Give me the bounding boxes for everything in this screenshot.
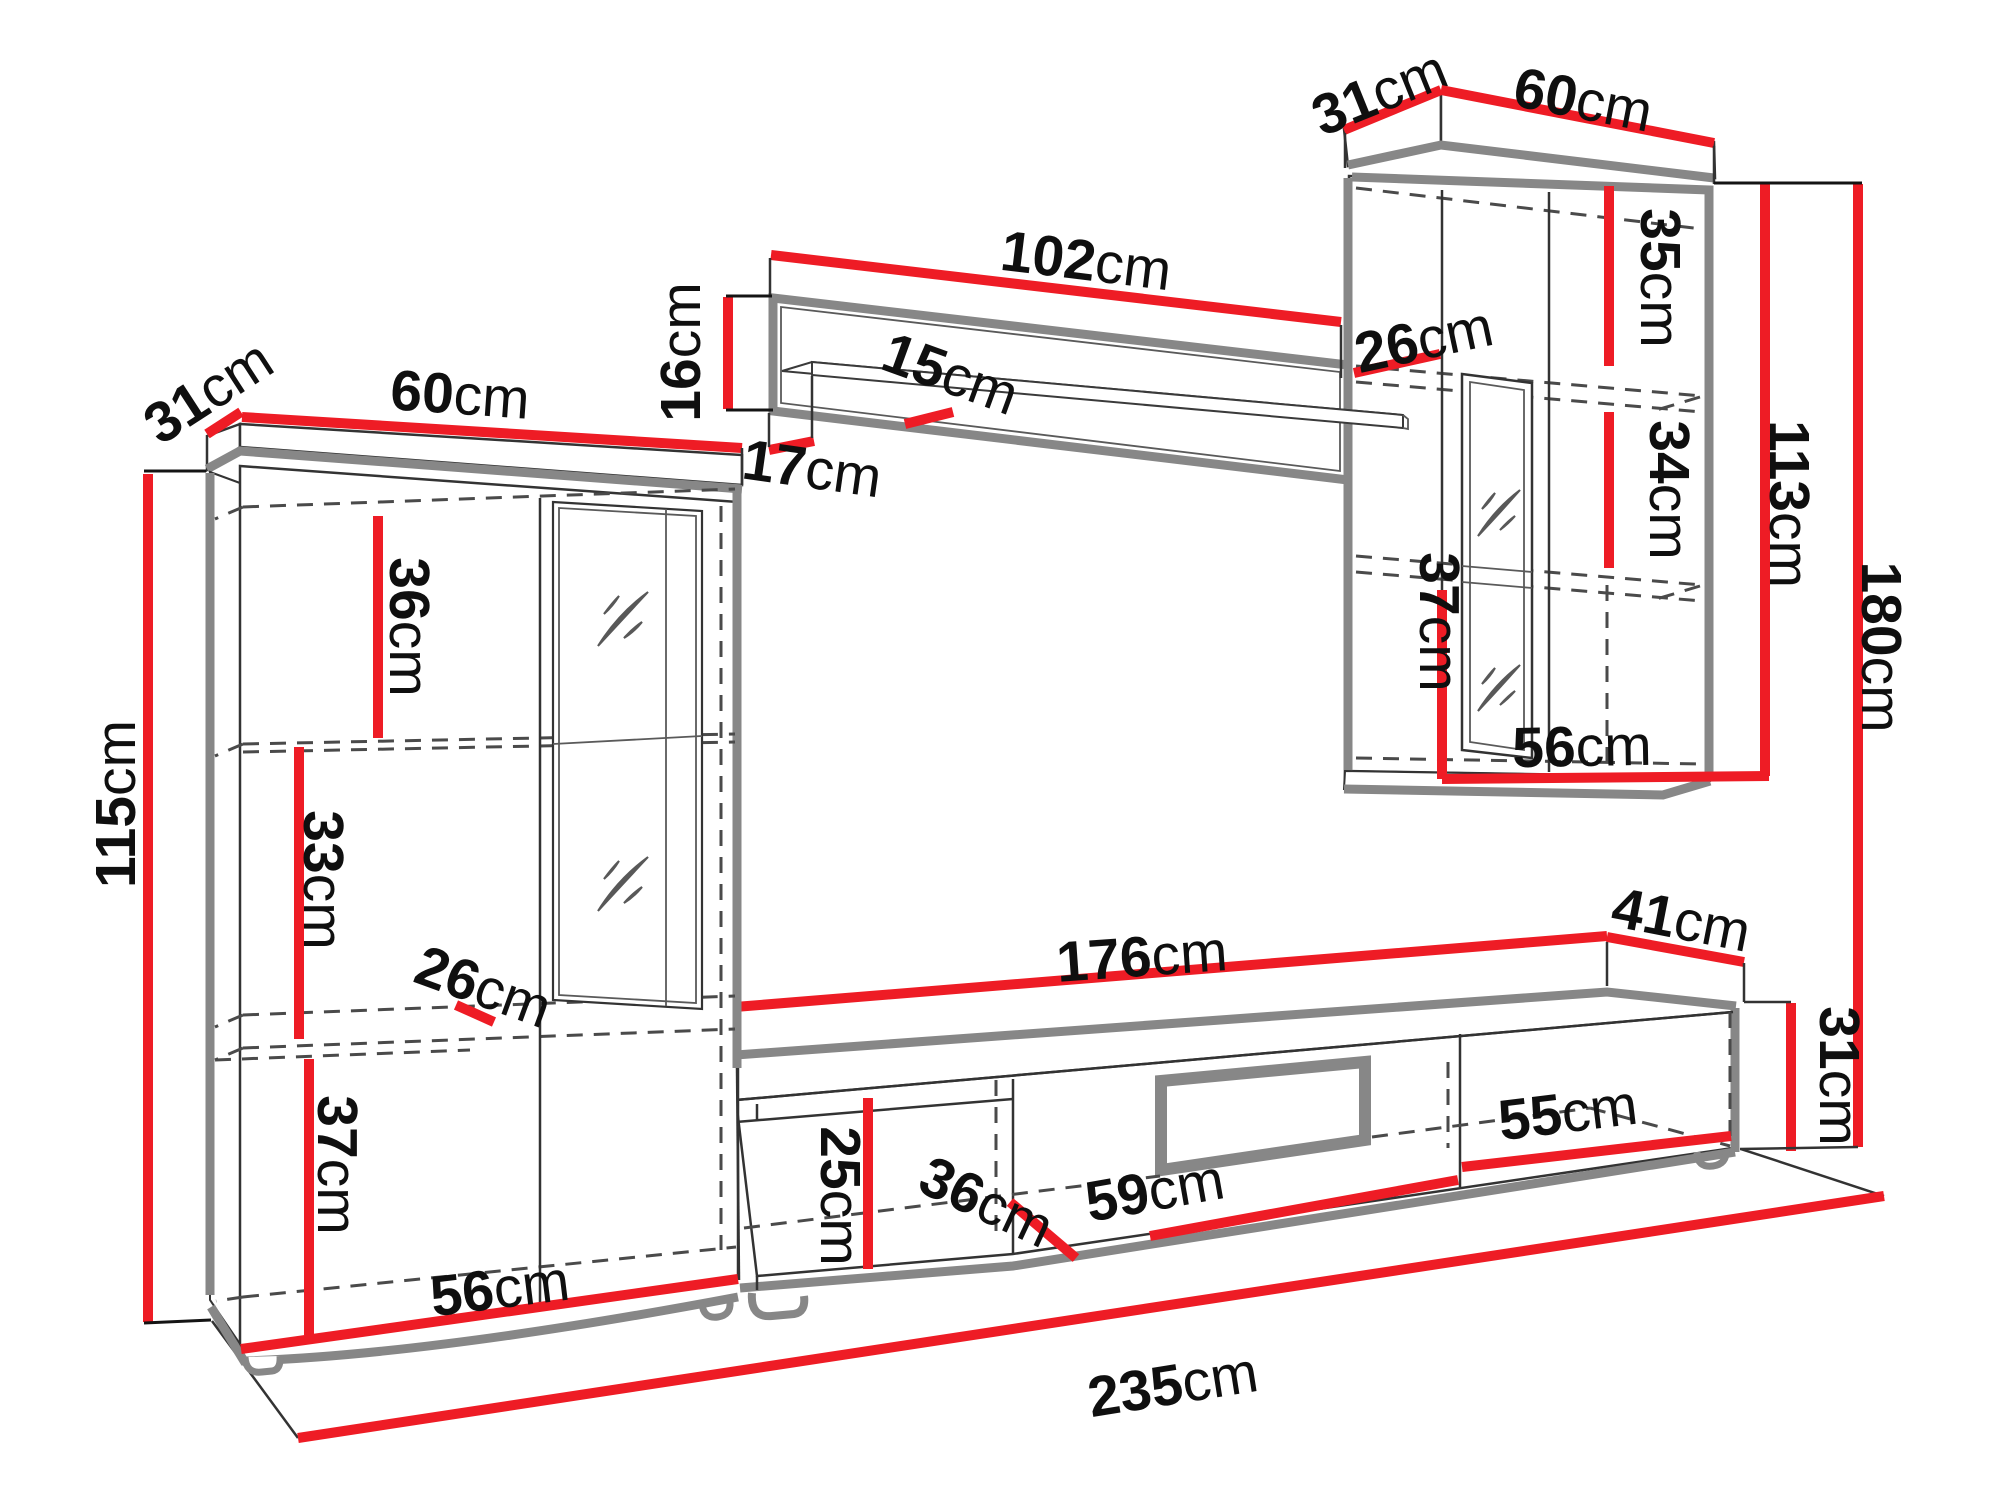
svg-text:37cm: 37cm <box>1407 552 1471 691</box>
svg-text:31cm: 31cm <box>1807 1006 1871 1145</box>
svg-text:25cm: 25cm <box>808 1126 872 1265</box>
svg-text:180cm: 180cm <box>1849 561 1913 732</box>
svg-text:35cm: 35cm <box>1628 208 1692 347</box>
svg-text:56cm: 56cm <box>1512 714 1652 780</box>
svg-text:16cm: 16cm <box>649 282 713 421</box>
svg-text:60cm: 60cm <box>388 358 532 432</box>
svg-text:176cm: 176cm <box>1054 919 1229 995</box>
svg-text:33cm: 33cm <box>291 810 355 949</box>
svg-text:113cm: 113cm <box>1757 420 1821 588</box>
svg-text:115cm: 115cm <box>84 720 148 888</box>
svg-text:37cm: 37cm <box>305 1095 369 1234</box>
svg-text:36cm: 36cm <box>377 557 441 696</box>
svg-text:34cm: 34cm <box>1637 420 1701 559</box>
